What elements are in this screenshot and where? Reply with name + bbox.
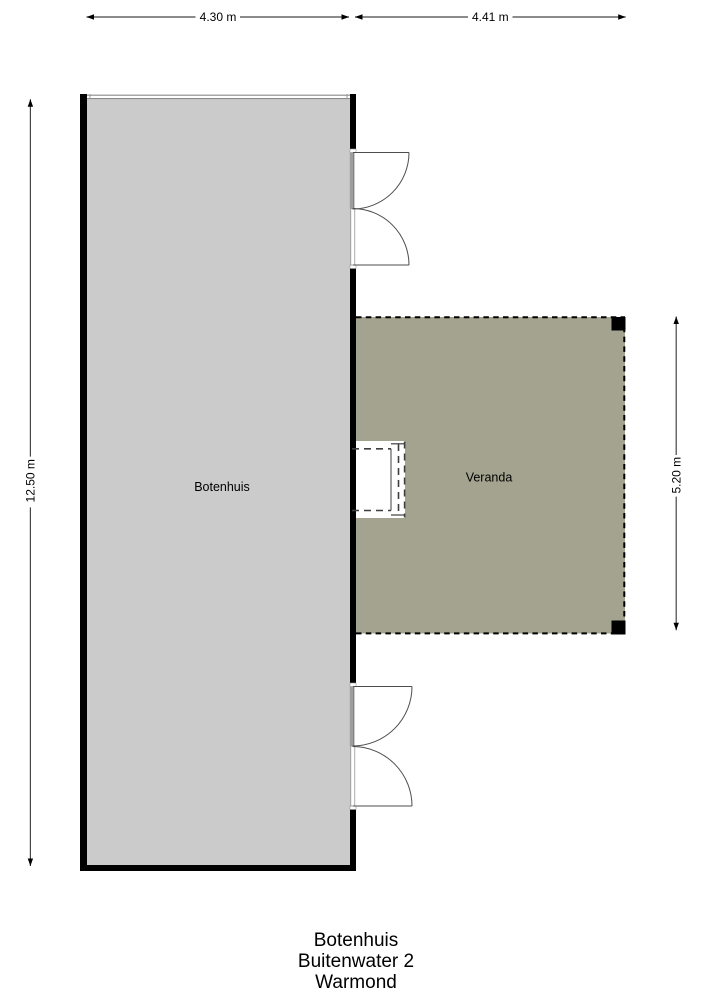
svg-text:Botenhuis: Botenhuis — [194, 480, 250, 494]
svg-text:5.20 m: 5.20 m — [669, 457, 683, 494]
svg-text:Buitenwater 2: Buitenwater 2 — [298, 951, 414, 972]
svg-text:4.30 m: 4.30 m — [200, 10, 237, 24]
svg-text:Botenhuis: Botenhuis — [314, 930, 399, 951]
svg-text:Warmond: Warmond — [315, 972, 397, 993]
svg-text:4.41 m: 4.41 m — [472, 10, 509, 24]
svg-text:12.50 m: 12.50 m — [24, 459, 38, 502]
svg-text:Veranda: Veranda — [466, 471, 513, 485]
